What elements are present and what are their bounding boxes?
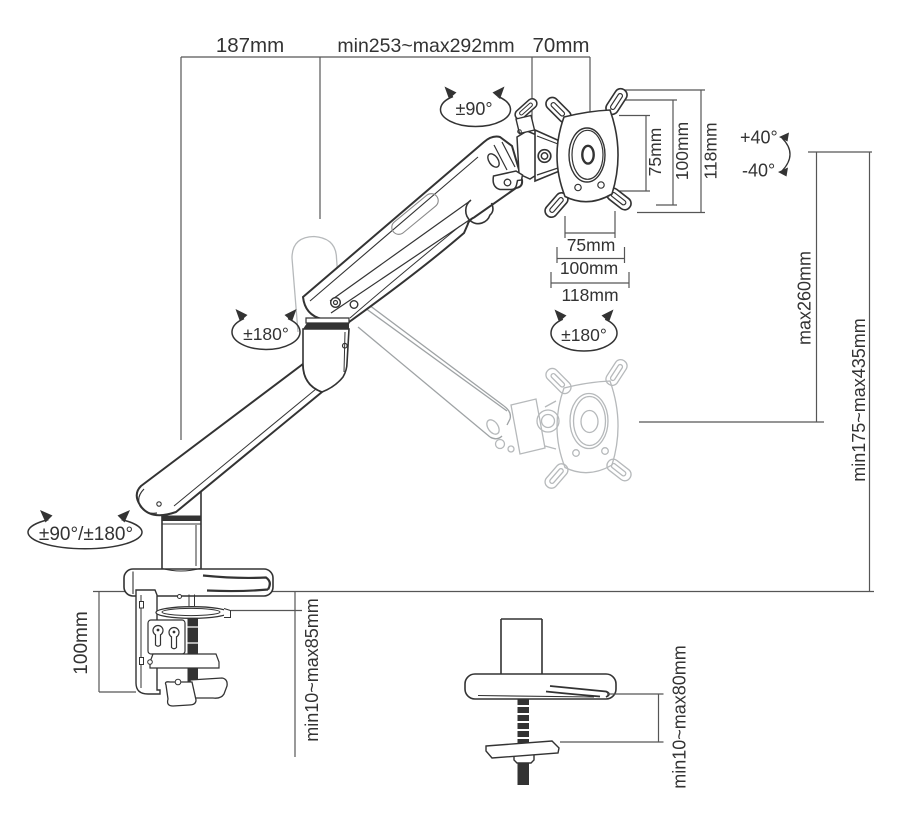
svg-text:70mm: 70mm [533, 34, 590, 57]
svg-text:min10~max85mm: min10~max85mm [302, 598, 322, 742]
svg-text:187mm: 187mm [216, 34, 284, 57]
svg-text:min175~max435mm: min175~max435mm [849, 318, 869, 482]
svg-text:min10~max80mm: min10~max80mm [670, 645, 690, 789]
svg-text:±90°/±180°: ±90°/±180° [39, 524, 133, 545]
svg-text:118mm: 118mm [561, 285, 618, 305]
svg-text:75mm: 75mm [567, 235, 616, 255]
svg-text:max260mm: max260mm [795, 251, 815, 345]
svg-text:±180°: ±180° [561, 325, 607, 345]
svg-text:-40°: -40° [742, 161, 775, 181]
svg-text:±90°: ±90° [455, 99, 492, 119]
svg-text:+40°: +40° [740, 128, 778, 148]
svg-text:100mm: 100mm [560, 258, 618, 278]
svg-text:±180°: ±180° [243, 324, 289, 344]
svg-text:100mm: 100mm [672, 122, 692, 180]
svg-text:min253~max292mm: min253~max292mm [337, 35, 514, 57]
svg-text:75mm: 75mm [645, 128, 665, 177]
svg-text:118mm: 118mm [701, 122, 721, 179]
svg-text:100mm: 100mm [71, 611, 92, 674]
